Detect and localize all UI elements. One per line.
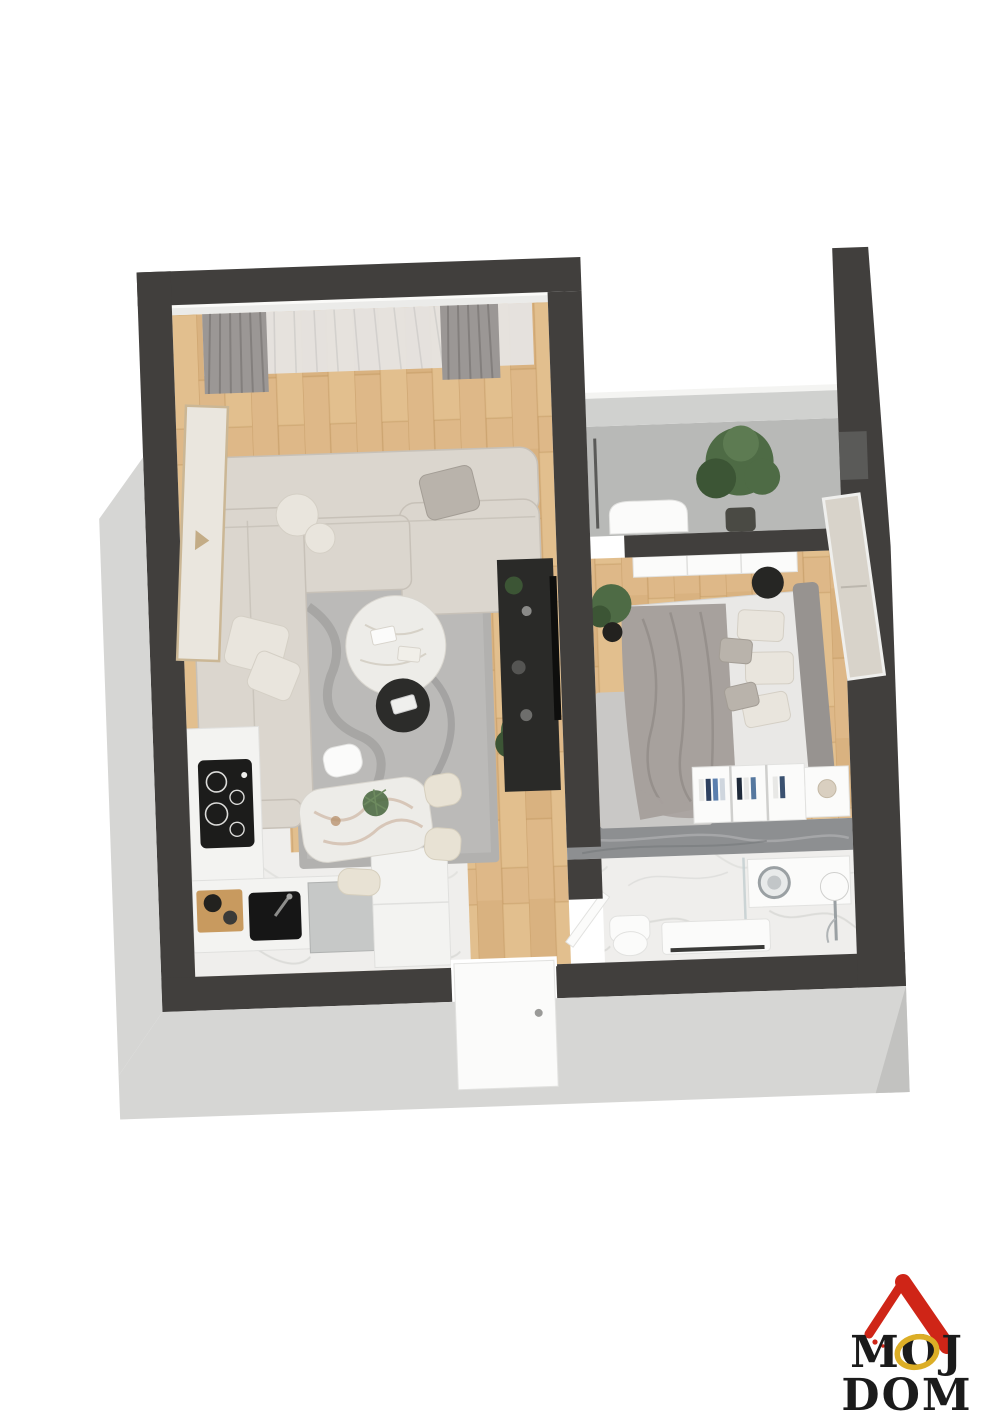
cutting-board — [196, 889, 243, 933]
bed-pillow — [745, 652, 794, 685]
front-door — [451, 956, 561, 1090]
washing-machine — [759, 867, 790, 898]
cooktop — [198, 759, 255, 849]
curtain-panel-left — [202, 312, 269, 394]
entry-recess — [839, 431, 869, 480]
dining-chair — [424, 827, 462, 861]
dresser — [804, 766, 850, 818]
logo-word-dom: DOM — [841, 1370, 972, 1415]
kitchen-sink — [248, 891, 302, 941]
apartment-3d-plan: MOJ DOM — [0, 0, 1000, 1415]
hall-bench — [609, 499, 688, 534]
toilet — [609, 915, 650, 956]
open-wardrobe — [692, 763, 806, 823]
shower-head — [820, 872, 849, 901]
bathroom-west-wall — [567, 859, 602, 900]
kitchen-peninsula — [371, 847, 451, 968]
dining-stool — [337, 868, 380, 896]
round-pillow — [304, 523, 335, 554]
front-door-panel — [454, 960, 558, 1089]
basket — [818, 779, 837, 798]
floor-plan-render: MOJ DOM — [0, 0, 1000, 1415]
shower-tray — [662, 919, 771, 955]
living-wall-art — [177, 406, 228, 661]
bed-pillow — [737, 609, 785, 641]
tree-pot — [725, 507, 756, 532]
bed-cushion — [719, 638, 753, 665]
